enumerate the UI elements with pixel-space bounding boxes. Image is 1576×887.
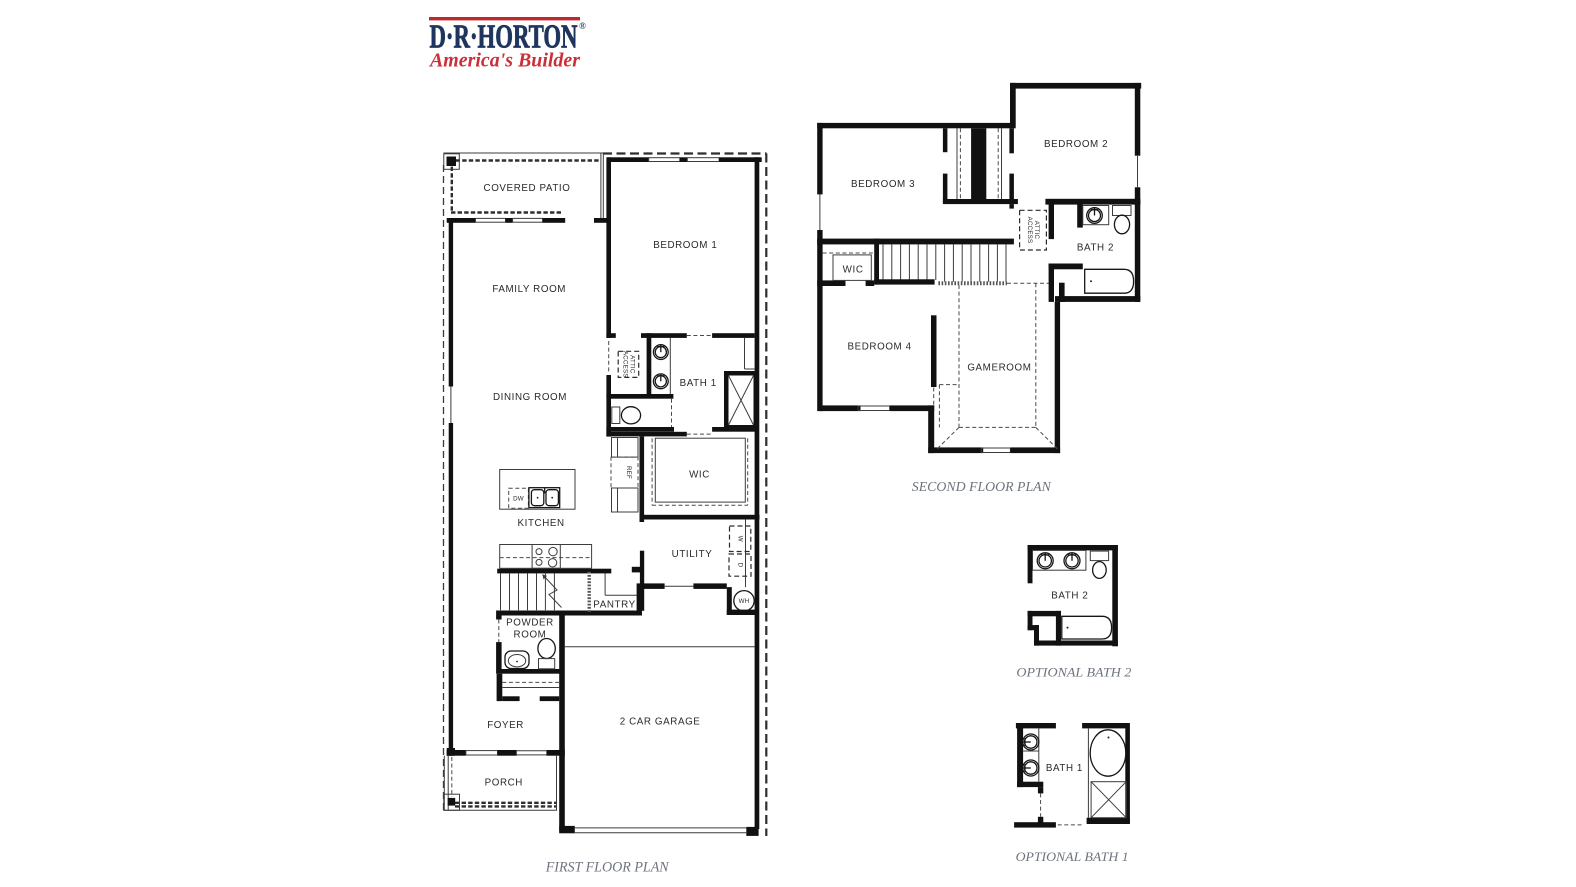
- svg-text:BEDROOM 3: BEDROOM 3: [851, 179, 915, 190]
- svg-text:®: ®: [579, 21, 586, 31]
- svg-text:ROOM: ROOM: [514, 630, 547, 641]
- svg-text:FOYER: FOYER: [487, 720, 524, 731]
- svg-text:BEDROOM 1: BEDROOM 1: [653, 240, 717, 251]
- svg-text:UTILITY: UTILITY: [672, 549, 713, 560]
- svg-text:D: D: [736, 563, 743, 568]
- svg-text:2 CAR GARAGE: 2 CAR GARAGE: [620, 716, 701, 727]
- svg-text:BATH 1: BATH 1: [1046, 763, 1083, 774]
- svg-text:WIC: WIC: [689, 469, 710, 480]
- svg-text:PORCH: PORCH: [485, 777, 523, 788]
- svg-text:W: W: [737, 536, 744, 542]
- svg-text:ATTIC: ATTIC: [1033, 221, 1040, 240]
- svg-text:PANTRY: PANTRY: [593, 599, 635, 610]
- svg-text:REF: REF: [625, 466, 632, 479]
- svg-text:DINING ROOM: DINING ROOM: [493, 392, 567, 403]
- svg-text:WH: WH: [739, 598, 750, 605]
- svg-text:DW: DW: [513, 496, 524, 503]
- svg-text:BATH 2: BATH 2: [1051, 590, 1088, 601]
- svg-text:ACCESS: ACCESS: [1026, 217, 1033, 244]
- svg-text:KITCHEN: KITCHEN: [517, 518, 564, 529]
- svg-text:SECOND FLOOR PLAN: SECOND FLOOR PLAN: [912, 479, 1052, 494]
- svg-text:OPTIONAL BATH 1: OPTIONAL BATH 1: [1016, 849, 1129, 864]
- svg-text:ATTIC: ATTIC: [628, 355, 635, 374]
- svg-text:FAMILY ROOM: FAMILY ROOM: [492, 284, 566, 295]
- svg-text:GAMEROOM: GAMEROOM: [967, 363, 1031, 374]
- svg-text:BATH 1: BATH 1: [680, 378, 717, 389]
- svg-text:WIC: WIC: [843, 264, 864, 275]
- svg-text:POWDER: POWDER: [506, 618, 554, 629]
- svg-text:COVERED PATIO: COVERED PATIO: [484, 183, 571, 194]
- svg-text:BATH 2: BATH 2: [1077, 242, 1114, 253]
- svg-text:BEDROOM 4: BEDROOM 4: [847, 341, 911, 352]
- svg-text:America's Builder: America's Builder: [428, 51, 580, 72]
- svg-text:BEDROOM 2: BEDROOM 2: [1044, 139, 1108, 150]
- svg-text:ACCESS: ACCESS: [621, 351, 628, 378]
- svg-text:FIRST FLOOR PLAN: FIRST FLOOR PLAN: [545, 860, 670, 876]
- svg-text:OPTIONAL BATH 2: OPTIONAL BATH 2: [1016, 664, 1132, 679]
